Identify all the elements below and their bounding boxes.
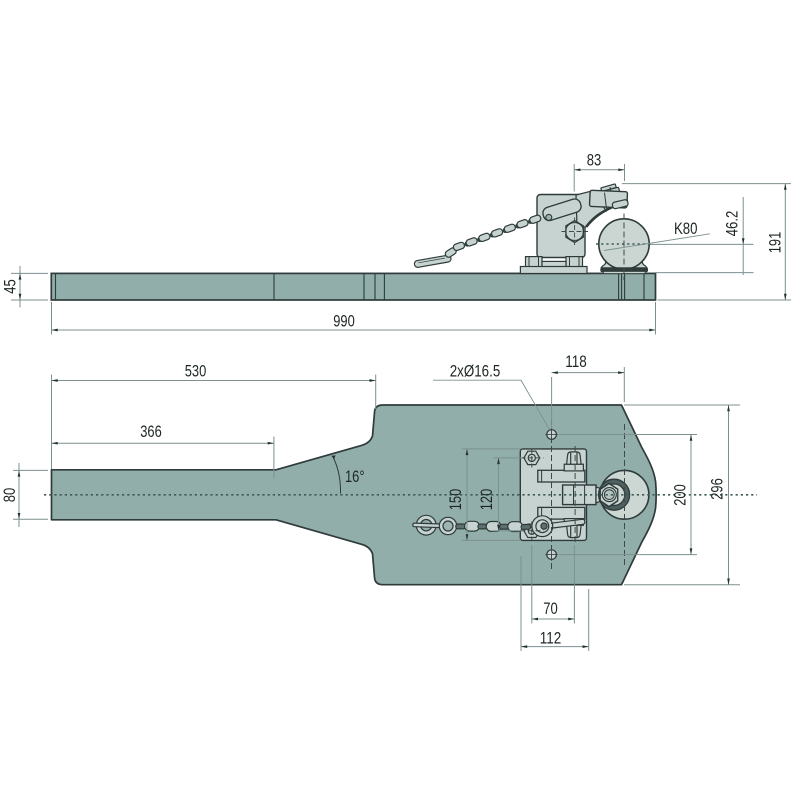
svg-text:2xØ16.5: 2xØ16.5 [450,363,501,381]
svg-text:80: 80 [1,488,19,503]
svg-text:16°: 16° [345,468,365,486]
svg-text:530: 530 [185,363,207,381]
svg-text:191: 191 [767,232,785,254]
svg-text:990: 990 [333,313,355,331]
svg-text:120: 120 [478,489,496,511]
svg-text:118: 118 [565,353,587,371]
svg-text:70: 70 [543,600,558,618]
svg-text:46.2: 46.2 [724,211,742,237]
svg-text:366: 366 [140,423,162,441]
svg-text:296: 296 [709,478,727,500]
svg-text:112: 112 [540,630,562,648]
svg-text:83: 83 [587,152,602,170]
svg-text:150: 150 [447,489,465,511]
svg-text:K80: K80 [674,220,698,238]
svg-text:45: 45 [2,279,20,294]
svg-text:200: 200 [672,484,690,506]
